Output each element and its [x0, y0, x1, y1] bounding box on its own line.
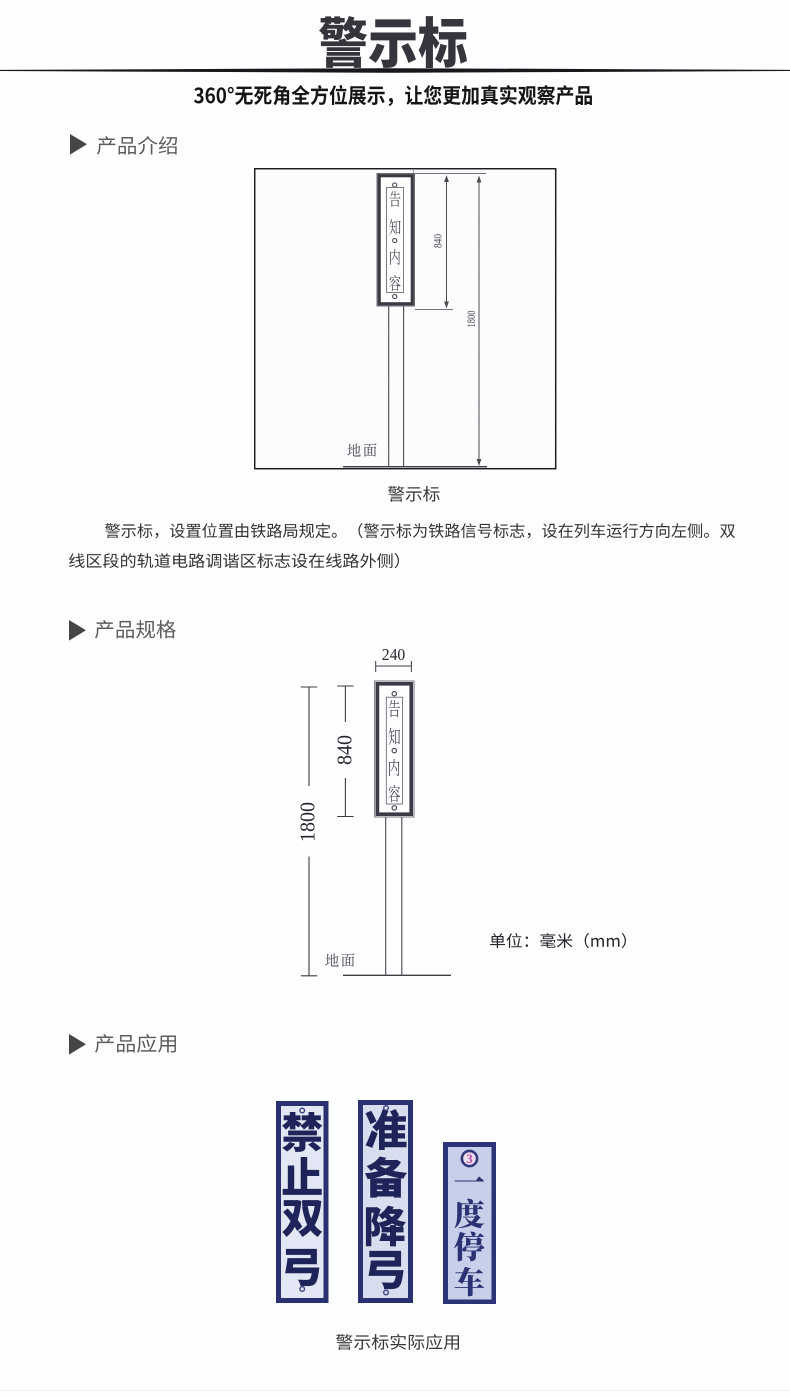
svg-text:3: 3: [466, 1151, 473, 1166]
svg-text:1800: 1800: [296, 802, 320, 842]
svg-text:1800: 1800: [464, 311, 478, 328]
svg-text:240: 240: [382, 645, 406, 664]
svg-text:840: 840: [332, 735, 356, 765]
svg-text:840: 840: [431, 234, 445, 248]
